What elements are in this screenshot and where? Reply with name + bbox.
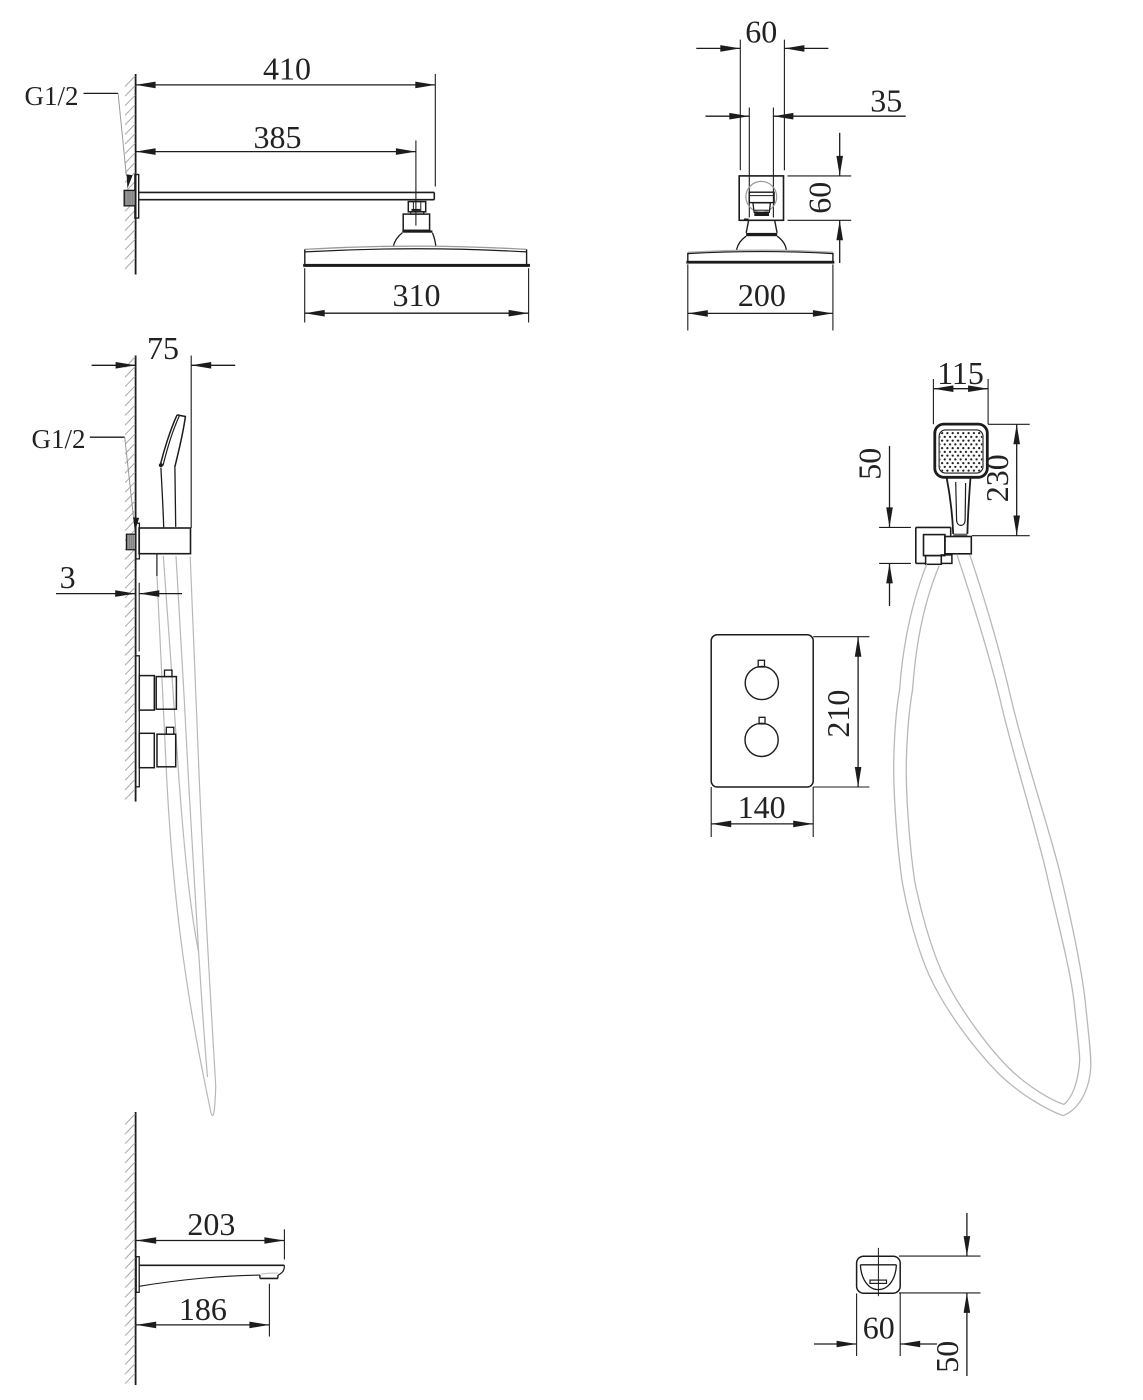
svg-text:210: 210 [820, 690, 856, 738]
svg-text:50: 50 [852, 448, 888, 480]
svg-text:310: 310 [393, 277, 441, 313]
svg-text:203: 203 [187, 1206, 235, 1242]
svg-text:60: 60 [745, 14, 777, 50]
svg-text:G1/2: G1/2 [25, 81, 79, 111]
svg-text:230: 230 [979, 454, 1015, 502]
svg-text:385: 385 [254, 119, 302, 155]
svg-text:75: 75 [147, 330, 179, 366]
svg-text:115: 115 [937, 355, 984, 391]
svg-text:3: 3 [60, 559, 76, 595]
svg-text:60: 60 [863, 1310, 895, 1346]
svg-text:200: 200 [738, 277, 786, 313]
svg-text:35: 35 [870, 83, 902, 119]
svg-text:410: 410 [263, 51, 311, 87]
svg-text:50: 50 [929, 1341, 965, 1373]
svg-text:186: 186 [179, 1291, 227, 1327]
svg-text:G1/2: G1/2 [32, 424, 86, 454]
svg-text:60: 60 [802, 182, 838, 214]
svg-text:140: 140 [738, 789, 786, 825]
